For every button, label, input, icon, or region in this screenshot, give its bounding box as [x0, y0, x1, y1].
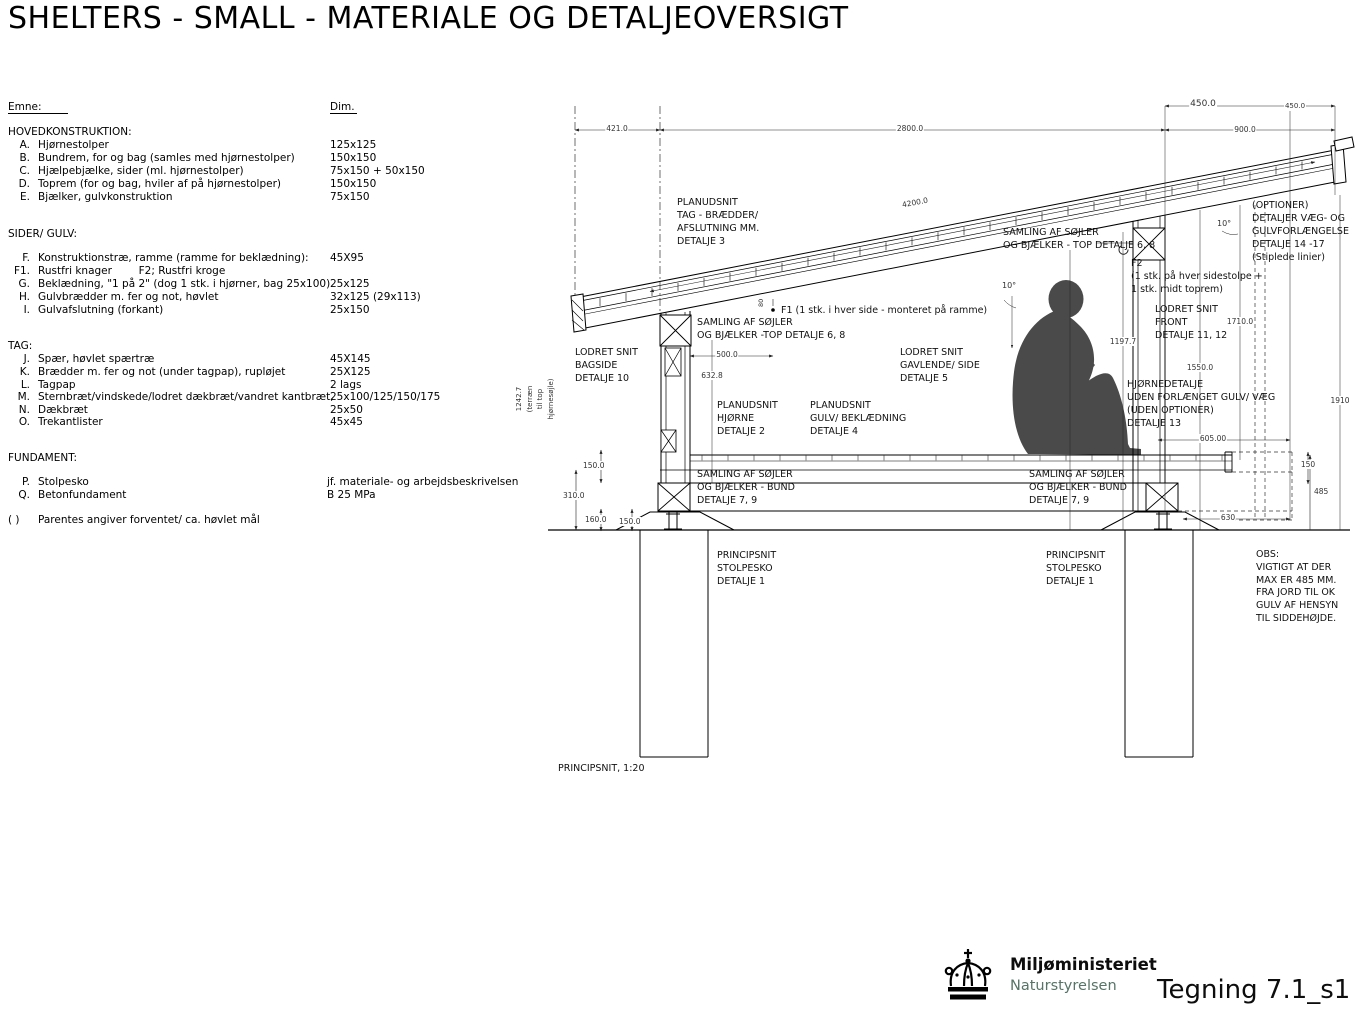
dim-80: 80 — [757, 298, 766, 308]
material-row: E.Bjælker, gulvkonstruktion75x150 — [0, 191, 540, 204]
ministry-name: Miljøministeriet — [1010, 955, 1157, 974]
label-obs: OBS: VIGTIGT AT DER MAX ER 485 MM. FRA J… — [1256, 549, 1338, 626]
material-row: K.Brædder m. fer og not (under tagpap), … — [0, 366, 540, 379]
label-lodret-bagside: LODRET SNIT BAGSIDE DETALJE 10 — [575, 346, 638, 385]
section-heading: SIDER/ GULV: — [8, 228, 77, 240]
label-samling-top-left: SAMLING AF SØJLER OG BJÆLKER -TOP DETALJ… — [697, 316, 845, 342]
material-row: D.Toprem (for og bag, hviler af på hjørn… — [0, 178, 540, 191]
material-row: J.Spær, høvlet spærtræ45X145 — [0, 353, 540, 366]
foundations — [548, 511, 1350, 757]
agency-name: Naturstyrelsen — [1010, 978, 1117, 994]
label-principsnit-stolpesko-right: PRINCIPSNIT STOLPESKO DETALJE 1 — [1046, 549, 1105, 588]
label-f2-note: F2 (1 stk. på hver sidestolpe + 1 stk. m… — [1131, 257, 1263, 296]
drawing-number: Tegning 7.1_s1 — [1157, 975, 1350, 1005]
label-optioner: (OPTIONER) DETALJER VÆG- OG GULVFORLÆNGE… — [1252, 199, 1349, 264]
dim-150-c: 150 — [1300, 460, 1316, 469]
section-heading: HOVEDKONSTRUKTION: — [8, 126, 132, 138]
material-row: M.Sternbræt/vindskede/lodret dækbræt/van… — [0, 391, 540, 404]
label-planudsnit-hjorne: PLANUDSNIT HJØRNE DETALJE 2 — [717, 399, 778, 438]
label-lodret-front: LODRET SNIT FRONT DETALJE 11, 12 — [1155, 303, 1227, 342]
drawing-sheet: SHELTERS - SMALL - MATERIALE OG DETALJEO… — [0, 0, 1369, 1019]
material-row: O.Trekantlister45x45 — [0, 416, 540, 429]
label-principsnit-stolpesko-left: PRINCIPSNIT STOLPESKO DETALJE 1 — [717, 549, 776, 588]
dim-1242-terraen: 1242.7 (terræn til top hjørnesøjle) — [514, 338, 556, 460]
dim-1197: 1197.7 — [1109, 337, 1137, 346]
dim-angle-10-left: 10° — [1001, 281, 1017, 290]
dim-900: 900.0 — [1233, 125, 1256, 134]
dim-500: 500.0 — [715, 350, 738, 359]
label-samling-bund-right: SAMLING AF SØJLER OG BJÆLKER - BUND DETA… — [1029, 468, 1127, 507]
material-row: G.Beklædning, "1 på 2" (dog 1 stk. i hjø… — [0, 278, 540, 291]
dim-310: 310.0 — [562, 491, 585, 500]
label-lodret-gavl: LODRET SNIT GAVLENDE/ SIDE DETALJE 5 — [900, 346, 980, 385]
section-heading: FUNDAMENT: — [8, 452, 77, 464]
dim-angle-10-right: 10° — [1216, 219, 1232, 228]
dim-485: 485 — [1313, 487, 1329, 496]
dim-150-b: 150.0 — [618, 517, 641, 526]
dim-1910: 1910 — [1329, 396, 1350, 405]
material-row: I.Gulvafslutning (forkant)25x150 — [0, 304, 540, 317]
label-planudsnit-gulv: PLANUDSNIT GULV/ BEKLÆDNING DETALJE 4 — [810, 399, 906, 438]
dim-450-a: 450.0 — [1189, 100, 1217, 109]
label-samling-top-right: SAMLING AF SØJLER OG BJÆLKER - TOP DETAL… — [1003, 226, 1155, 252]
dim-630: 630 — [1220, 513, 1236, 522]
dim-605: 605.00 — [1199, 434, 1227, 443]
dim-450-b: 450.0 — [1284, 102, 1306, 111]
material-row: C.Hjælpebjælke, sider (ml. hjørnestolper… — [0, 165, 540, 178]
dim-1710: 1710.0 — [1226, 317, 1254, 326]
material-row: F.Konstruktionstræ, ramme (ramme for bek… — [0, 252, 540, 265]
materials-footnote: ( )Parentes angiver forventet/ ca. høvle… — [0, 514, 540, 527]
dim-160: 160.0 — [584, 515, 607, 524]
dim-150-a: 150.0 — [582, 461, 605, 470]
material-row: B.Bundrem, for og bag (samles med hjørne… — [0, 152, 540, 165]
label-planudsnit-tag: PLANUDSNIT TAG - BRÆDDER/ AFSLUTNING MM.… — [677, 196, 759, 248]
drawing-caption: PRINCIPSNIT, 1:20 — [558, 762, 645, 775]
material-row: Q.BetonfundamentB 25 MPa — [0, 489, 540, 502]
materials-col-emne: Emne: — [8, 101, 68, 114]
dim-2800: 2800.0 — [896, 124, 924, 133]
material-row: A.Hjørnestolper125x125 — [0, 139, 540, 152]
label-samling-bund-left: SAMLING AF SØJLER OG BJÆLKER - BUND DETA… — [697, 468, 795, 507]
material-row: P.Stolpeskojf. materiale- og arbejdsbesk… — [0, 476, 540, 489]
material-row: H.Gulvbrædder m. fer og not, høvlet32x12… — [0, 291, 540, 304]
principsnit-drawing — [540, 90, 1369, 800]
seated-person-silhouette — [1013, 280, 1141, 455]
label-hjornedetalje: HJØRNEDETALJE UDEN FORLÆNGET GULV/ VÆG (… — [1127, 378, 1275, 430]
crown-logo-icon — [941, 946, 995, 1004]
page-title: SHELTERS - SMALL - MATERIALE OG DETALJEO… — [8, 1, 849, 36]
material-row: F1.Rustfri knager F2; Rustfri kroge — [0, 265, 540, 278]
dim-632: 632.8 — [700, 371, 723, 380]
dim-1550: 1550.0 — [1186, 363, 1214, 372]
materials-col-dim: Dim. — [330, 101, 357, 114]
section-heading: TAG: — [8, 340, 32, 352]
dim-421: 421.0 — [605, 124, 628, 133]
